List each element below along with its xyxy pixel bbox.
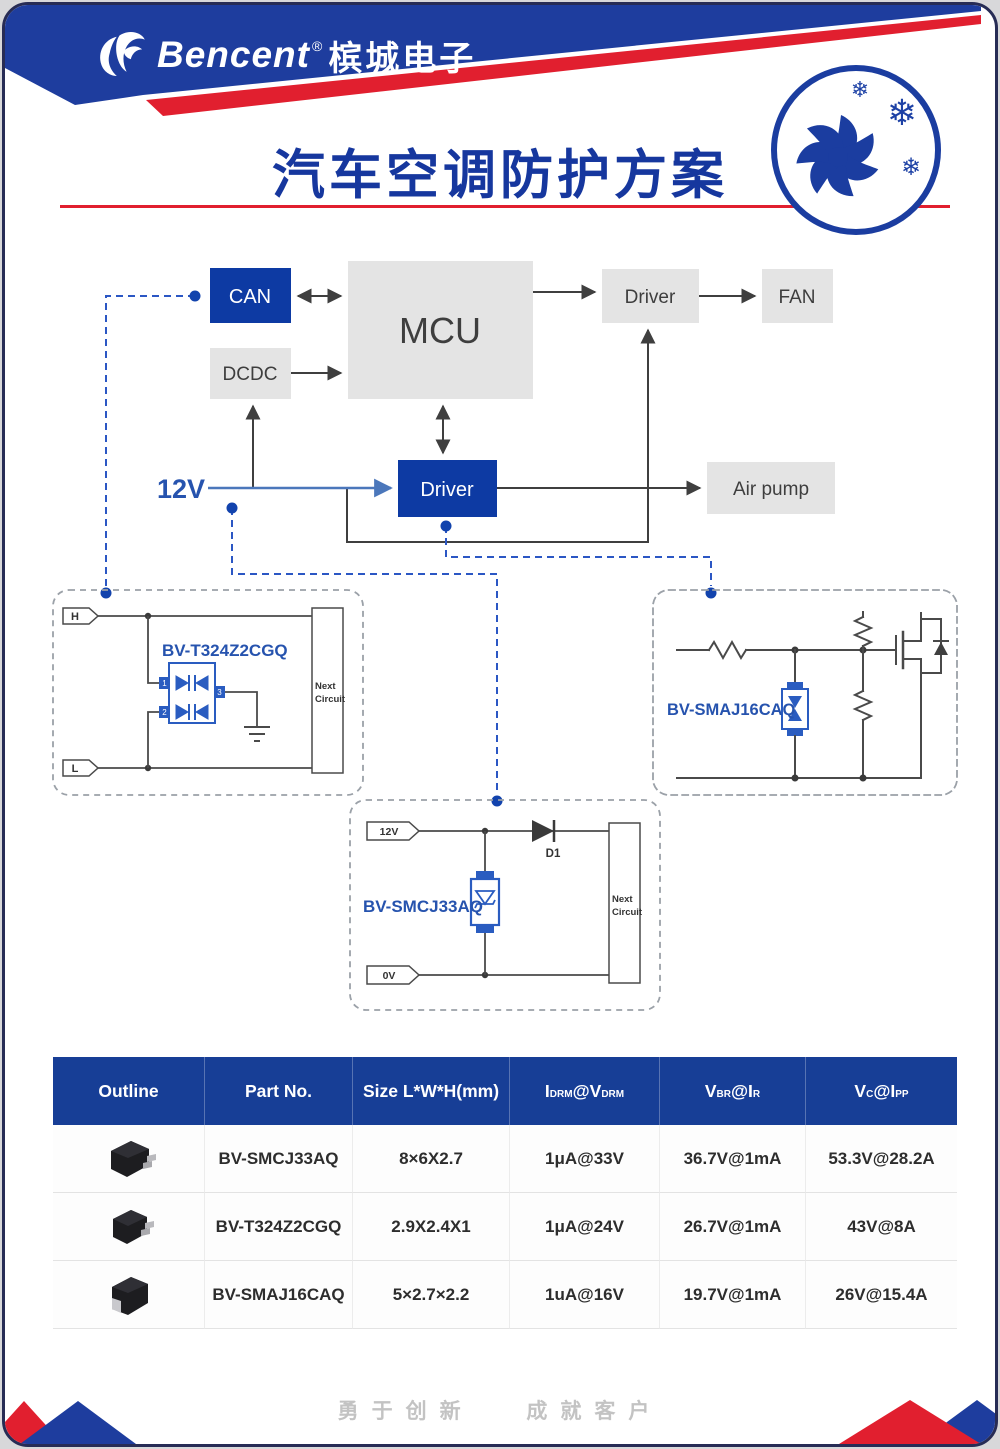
node-dot bbox=[190, 291, 201, 302]
component-photo bbox=[97, 1201, 161, 1253]
brand-name: Bencent bbox=[157, 34, 310, 76]
air-pump-label: Air pump bbox=[733, 479, 809, 500]
driver-top-label: Driver bbox=[625, 287, 676, 308]
next-circuit-label: Circuit bbox=[315, 694, 346, 705]
parameter-table: Outline Part No. Size L*W*H(mm) IDRM@VDR… bbox=[53, 1057, 957, 1329]
table-row: BV-SMCJ33AQ 8×6X2.7 1μA@33V 36.7V@1mA 53… bbox=[53, 1125, 957, 1193]
next-circuit-label: Circuit bbox=[612, 907, 643, 918]
size-cell: 5×2.7×2.2 bbox=[353, 1261, 510, 1329]
poster-card: Bencent ® 槟城电子 汽车空调防护方案 ❄ ❄ ❄ bbox=[2, 2, 998, 1447]
v12-label: 12V bbox=[157, 474, 205, 504]
circuit-bottom: 12V 0V D1 Next Circuit BV-SMCJ33AQ bbox=[350, 800, 660, 1010]
circuit-left-part-label: BV-T324Z2CGQ bbox=[162, 641, 288, 660]
brand: Bencent ® 槟城电子 bbox=[93, 29, 476, 81]
node-dot bbox=[492, 796, 503, 807]
part-photo-cell bbox=[53, 1261, 205, 1329]
circuit-right-part-label: BV-SMAJ16CAQ bbox=[667, 701, 796, 719]
part-no-cell: BV-SMCJ33AQ bbox=[205, 1125, 353, 1193]
resistor-icon bbox=[855, 691, 871, 720]
transistor-icon bbox=[896, 613, 948, 778]
brand-reg-mark: ® bbox=[312, 38, 322, 54]
poster-page: Bencent ® 槟城电子 汽车空调防护方案 ❄ ❄ ❄ bbox=[0, 0, 1000, 1449]
pointer-can-circuit bbox=[106, 296, 195, 586]
idrm-cell: 1μA@33V bbox=[510, 1125, 660, 1193]
pin-3-label: 3 bbox=[217, 688, 222, 697]
snowflake-icon: ❄ bbox=[851, 77, 869, 102]
size-cell: 2.9X2.4X1 bbox=[353, 1193, 510, 1261]
node-dot bbox=[441, 521, 452, 532]
part-no-cell: BV-SMAJ16CAQ bbox=[205, 1261, 353, 1329]
tag-h bbox=[63, 608, 98, 624]
circuit-left: H L 1 2 3 Nex bbox=[53, 590, 363, 795]
fan-label: FAN bbox=[779, 287, 816, 308]
circuit-right: BV-SMAJ16CAQ bbox=[653, 590, 957, 795]
idrm-cell: 1μA@24V bbox=[510, 1193, 660, 1261]
solution-diagram: MCU CAN DCDC Driver FAN Driver Air pump … bbox=[5, 240, 998, 1030]
col-header-vbr: VBR@IR bbox=[660, 1057, 806, 1125]
idrm-cell: 1uA@16V bbox=[510, 1261, 660, 1329]
pin-2-label: 2 bbox=[162, 708, 167, 717]
dcdc-label: DCDC bbox=[223, 364, 278, 385]
can-label: CAN bbox=[229, 286, 271, 308]
table-row: BV-SMAJ16CAQ 5×2.7×2.2 1uA@16V 19.7V@1mA… bbox=[53, 1261, 957, 1329]
vbr-cell: 36.7V@1mA bbox=[660, 1125, 806, 1193]
tag-h-label: H bbox=[71, 611, 79, 623]
corner-decorations bbox=[5, 1380, 998, 1444]
table-row: BV-T324Z2CGQ 2.9X2.4X1 1μA@24V 26.7V@1mA… bbox=[53, 1193, 957, 1261]
brand-name-cn: 槟城电子 bbox=[328, 31, 476, 80]
vc-cell: 53.3V@28.2A bbox=[806, 1125, 957, 1193]
tag-12v-label: 12V bbox=[380, 826, 399, 838]
next-circuit-label: Next bbox=[315, 681, 336, 692]
tag-0v-label: 0V bbox=[383, 970, 396, 982]
node-dot bbox=[227, 503, 238, 514]
col-header-vc: VC@IPP bbox=[806, 1057, 957, 1125]
brand-logo-icon bbox=[93, 29, 149, 81]
snowflake-icon: ❄ bbox=[887, 92, 917, 133]
snowflake-icon: ❄ bbox=[901, 154, 921, 181]
fan-badge: ❄ ❄ ❄ bbox=[768, 61, 946, 239]
size-cell: 8×6X2.7 bbox=[353, 1125, 510, 1193]
diode-label: D1 bbox=[546, 848, 561, 860]
table-header-row: Outline Part No. Size L*W*H(mm) IDRM@VDR… bbox=[53, 1057, 957, 1125]
part-no-cell: BV-T324Z2CGQ bbox=[205, 1193, 353, 1261]
component-photo bbox=[97, 1269, 161, 1321]
col-header-outline: Outline bbox=[53, 1057, 205, 1125]
vc-cell: 26V@15.4A bbox=[806, 1261, 957, 1329]
pointer-driver-circuit bbox=[446, 526, 711, 586]
col-header-part-no: Part No. bbox=[205, 1057, 353, 1125]
component-photo bbox=[97, 1133, 161, 1185]
diode-icon bbox=[532, 820, 554, 842]
vbr-cell: 19.7V@1mA bbox=[660, 1261, 806, 1329]
vc-cell: 43V@8A bbox=[806, 1193, 957, 1261]
vbr-cell: 26.7V@1mA bbox=[660, 1193, 806, 1261]
driver-main-label: Driver bbox=[420, 479, 474, 501]
next-circuit-label: Next bbox=[612, 894, 633, 905]
part-photo-cell bbox=[53, 1193, 205, 1261]
ground-icon bbox=[244, 727, 270, 741]
resistor-icon bbox=[855, 617, 871, 646]
pin-1-label: 1 bbox=[162, 679, 167, 688]
part-photo-cell bbox=[53, 1125, 205, 1193]
col-header-size: Size L*W*H(mm) bbox=[353, 1057, 510, 1125]
mcu-label: MCU bbox=[399, 310, 481, 351]
tag-l-label: L bbox=[72, 763, 79, 775]
resistor-icon bbox=[709, 642, 746, 658]
col-header-idrm: IDRM@VDRM bbox=[510, 1057, 660, 1125]
tag-l bbox=[63, 760, 98, 776]
circuit-bottom-part-label: BV-SMCJ33AQ bbox=[363, 897, 483, 916]
